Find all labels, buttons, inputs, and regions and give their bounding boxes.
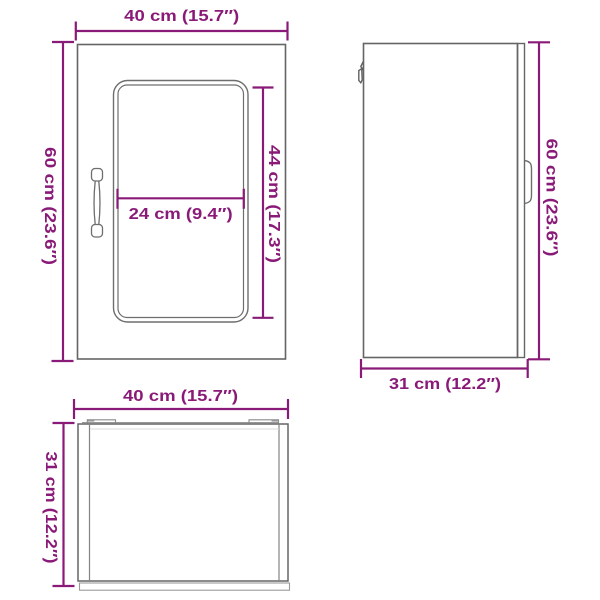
svg-text:24 cm (9.4″): 24 cm (9.4″) xyxy=(129,206,233,223)
svg-text:60 cm (23.6″): 60 cm (23.6″) xyxy=(41,147,58,265)
svg-text:60 cm (23.6″): 60 cm (23.6″) xyxy=(543,139,560,257)
svg-text:31 cm (12.2″): 31 cm (12.2″) xyxy=(42,452,59,564)
svg-text:44 cm (17.3″): 44 cm (17.3″) xyxy=(265,145,282,263)
svg-text:31 cm (12.2″): 31 cm (12.2″) xyxy=(389,376,501,393)
svg-text:40 cm (15.7″): 40 cm (15.7″) xyxy=(123,388,238,405)
svg-text:40 cm (15.7″): 40 cm (15.7″) xyxy=(124,8,239,25)
